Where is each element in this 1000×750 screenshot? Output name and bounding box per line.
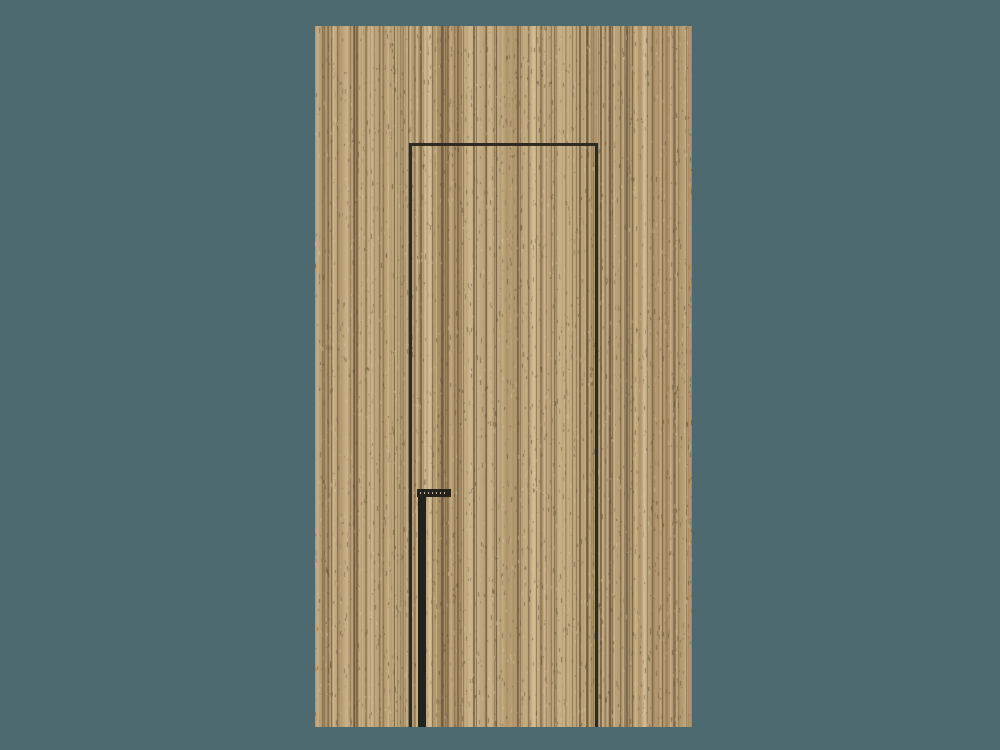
handle-end-cap	[417, 489, 451, 497]
handle-cap-perforation-dots	[420, 492, 448, 494]
door-pull-handle	[418, 490, 426, 727]
scene-background	[0, 0, 1000, 750]
door-reveal-top-line	[409, 143, 598, 146]
door-panel	[315, 26, 692, 727]
door-reveal-left-line	[409, 143, 412, 727]
door-reveal-right-line	[595, 143, 598, 727]
wood-grain-texture	[315, 26, 692, 727]
